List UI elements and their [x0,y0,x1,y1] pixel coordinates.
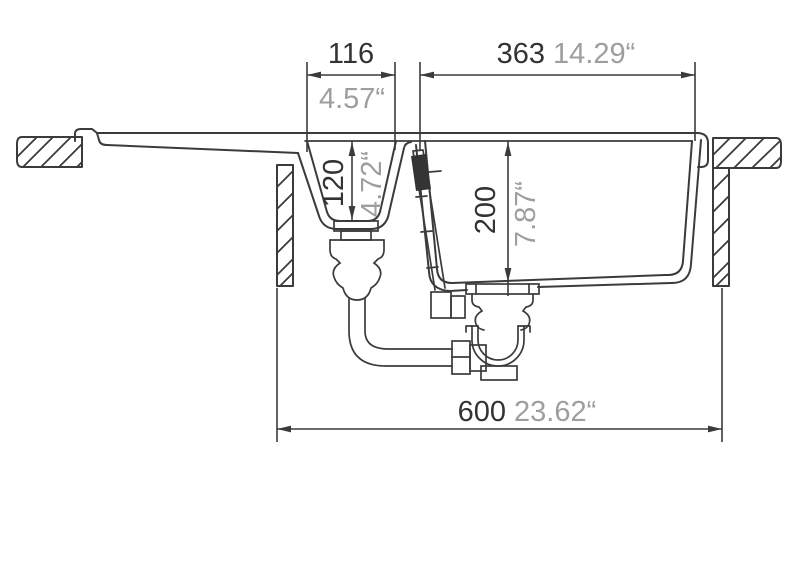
dim-label-200: 200 [470,186,502,234]
dim-main-bowl-depth: 200 7.87“ [470,141,542,296]
dim-label-120: 120 [318,159,350,207]
overflow-pipe [411,150,465,318]
drawing-canvas: 116 4.57“ 363 14.29“ 120 4.72“ 200 7.87“… [0,0,800,566]
overflow-clip [411,154,431,191]
right-countertop-section [713,138,781,168]
sink-profile [75,129,708,291]
arrowhead-up [505,142,512,156]
dim-label-4-57in: 4.57“ [319,83,385,115]
dim-small-bowl-depth: 120 4.72“ [318,141,388,221]
dim-label-14-29in: 14.29“ [553,38,635,70]
arrowhead-right [381,72,395,79]
arrowhead-left [307,72,321,79]
dim-label-363: 363 [497,38,545,70]
arrowhead-left [420,72,434,79]
dim-overall-width: 600 23.62“ [277,288,722,442]
arrowhead-right [681,72,695,79]
dim-small-bowl-width: 116 4.57“ [307,38,395,152]
dim-label-600: 600 [458,396,506,428]
arrowhead-up [349,142,356,156]
dim-label-23-62in: 23.62“ [514,396,596,428]
sink-technical-drawing: 116 4.57“ 363 14.29“ 120 4.72“ 200 7.87“… [0,0,800,566]
left-cabinet-panel [277,165,293,286]
dim-label-7-87in: 7.87“ [510,181,542,247]
dim-label-4-72in: 4.72“ [356,151,388,217]
arrowhead-right [708,426,722,433]
dim-label-116: 116 [328,38,374,70]
left-countertop-section [17,137,82,167]
arrowhead-left [277,426,291,433]
right-cabinet-panel [713,168,729,286]
